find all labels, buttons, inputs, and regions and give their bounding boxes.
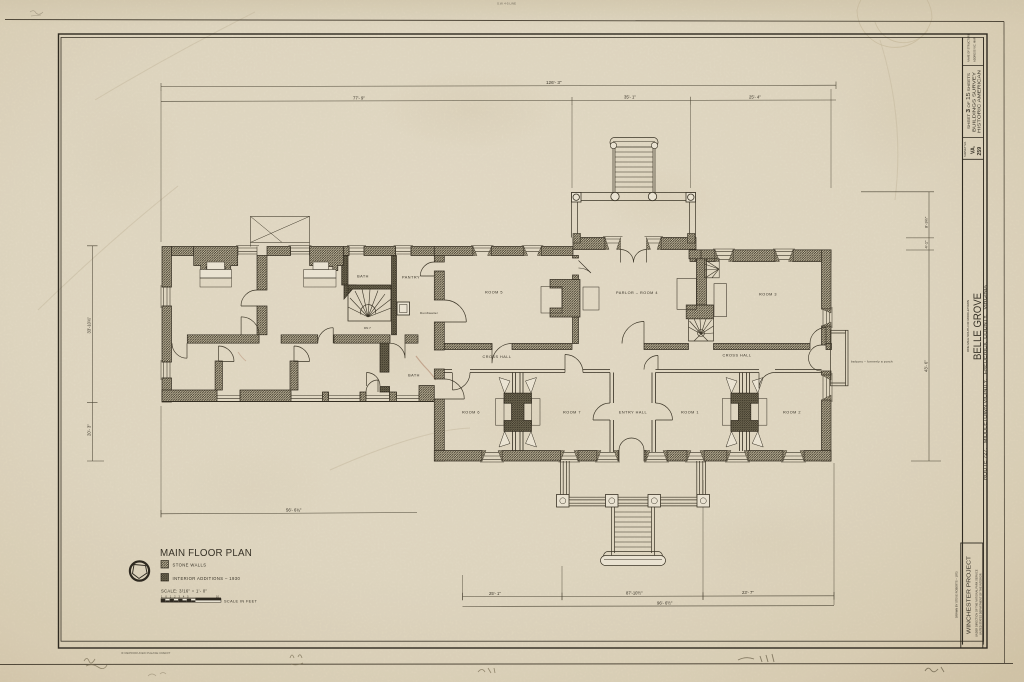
- svg-text:Dumbwaiter: Dumbwaiter: [420, 311, 438, 315]
- svg-text:DRAWN BY STEVE ROBERTS – 1973: DRAWN BY STEVE ROBERTS – 1973: [955, 571, 959, 618]
- svg-text:NAME OF STRUCTURE: NAME OF STRUCTURE: [967, 33, 971, 62]
- svg-text:SCALE IN FEET: SCALE IN FEET: [224, 600, 258, 604]
- svg-text:259: 259: [977, 147, 983, 156]
- svg-text:SCALE: 3/16" = 1'- 0": SCALE: 3/16" = 1'- 0": [161, 589, 207, 594]
- svg-text:35'- 1": 35'- 1": [624, 95, 636, 100]
- svg-text:MAIN FLOOR PLAN: MAIN FLOOR PLAN: [160, 548, 252, 559]
- svg-text:WINCHESTER PROJECT: WINCHESTER PROJECT: [967, 556, 973, 634]
- svg-text:UNITED STATES DEPARTMENT OF TH: UNITED STATES DEPARTMENT OF THE INTERIOR: [979, 573, 983, 635]
- svg-text:ADDRESS VIC. MAP: ADDRESS VIC. MAP: [973, 37, 977, 62]
- svg-text:126'- 3": 126'- 3": [546, 80, 562, 85]
- svg-text:77'- 9": 77'- 9": [353, 95, 365, 100]
- svg-text:ONE MILE SOUTH OF MIDDLETOWN: ONE MILE SOUTH OF MIDDLETOWN: [966, 300, 970, 352]
- svg-text:BUILDINGS SURVEY: BUILDINGS SURVEY: [972, 72, 977, 132]
- svg-text:56'- 6¾": 56'- 6¾": [286, 508, 302, 513]
- svg-text:ROOM 2: ROOM 2: [783, 411, 801, 415]
- svg-text:ROOM 5: ROOM 5: [485, 291, 503, 295]
- svg-text:SURVEY NO.: SURVEY NO.: [963, 141, 967, 157]
- svg-text:33'-10¾": 33'-10¾": [87, 316, 92, 333]
- svg-text:BATH: BATH: [408, 374, 420, 378]
- svg-text:PANTRY: PANTRY: [402, 276, 420, 280]
- svg-text:87'-10½": 87'-10½": [626, 590, 643, 595]
- svg-text:CROSS HALL: CROSS HALL: [722, 354, 751, 358]
- svg-text:96'- 6½": 96'- 6½": [657, 600, 673, 605]
- svg-text:ROOM 6: ROOM 6: [462, 411, 480, 415]
- svg-text:INTERIOR ADDITIONS – 1930: INTERIOR ADDITIONS – 1930: [173, 576, 241, 581]
- svg-text:STONE WALLS: STONE WALLS: [173, 563, 207, 568]
- svg-text:BATH: BATH: [357, 275, 369, 279]
- svg-text:CROSS HALL: CROSS HALL: [482, 355, 511, 359]
- svg-text:20'- 3": 20'- 3": [87, 424, 92, 436]
- svg-text:HISTORIC AMERICAN: HISTORIC AMERICAN: [977, 70, 982, 133]
- svg-text:ROOM 7: ROOM 7: [563, 411, 581, 415]
- svg-text:ENTRY HALL: ENTRY HALL: [619, 411, 647, 415]
- svg-text:43'- 6": 43'- 6": [924, 360, 929, 372]
- svg-text:8'-3½": 8'-3½": [924, 216, 929, 228]
- svg-text:ROUTE 727, MIDDLETOWN VICINI: ROUTE 727, MIDDLETOWN VICINITY, FREDERIC…: [983, 284, 988, 480]
- svg-text:balcony – formerly a porch: balcony – formerly a porch: [851, 360, 893, 364]
- svg-text:4'-1": 4'-1": [924, 240, 929, 249]
- svg-text:S.W. 4-5 LINE: S.W. 4-5 LINE: [497, 2, 516, 6]
- svg-text:25'- 1": 25'- 1": [489, 591, 501, 596]
- svg-text:IF REPRODUCED PLEASE CREDIT: IF REPRODUCED PLEASE CREDIT: [121, 651, 171, 655]
- svg-text:DN 7: DN 7: [364, 326, 371, 330]
- svg-text:ROOM 3: ROOM 3: [759, 293, 777, 297]
- svg-text:ROOM 1: ROOM 1: [681, 411, 699, 415]
- svg-text:UNDER DIRECTION OF THE NATIONA: UNDER DIRECTION OF THE NATIONAL PARK SER…: [975, 569, 979, 637]
- svg-text:25'- 4": 25'- 4": [749, 94, 761, 99]
- svg-text:PARLOR – ROOM 4: PARLOR – ROOM 4: [616, 291, 658, 295]
- svg-text:23'- 7": 23'- 7": [742, 590, 754, 595]
- svg-text:VA.: VA.: [971, 145, 977, 154]
